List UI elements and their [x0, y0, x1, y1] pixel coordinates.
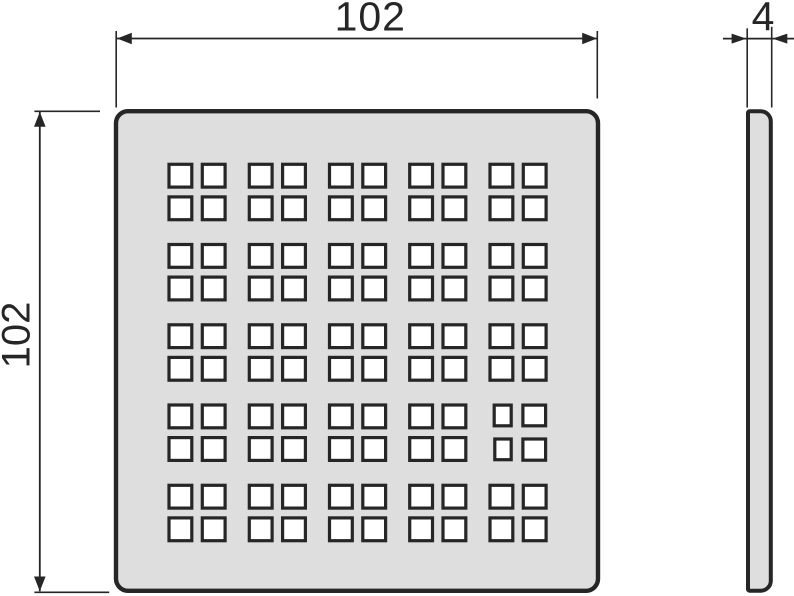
svg-text:102: 102: [0, 302, 39, 369]
svg-text:4: 4: [752, 0, 775, 39]
svg-text:102: 102: [335, 0, 406, 40]
